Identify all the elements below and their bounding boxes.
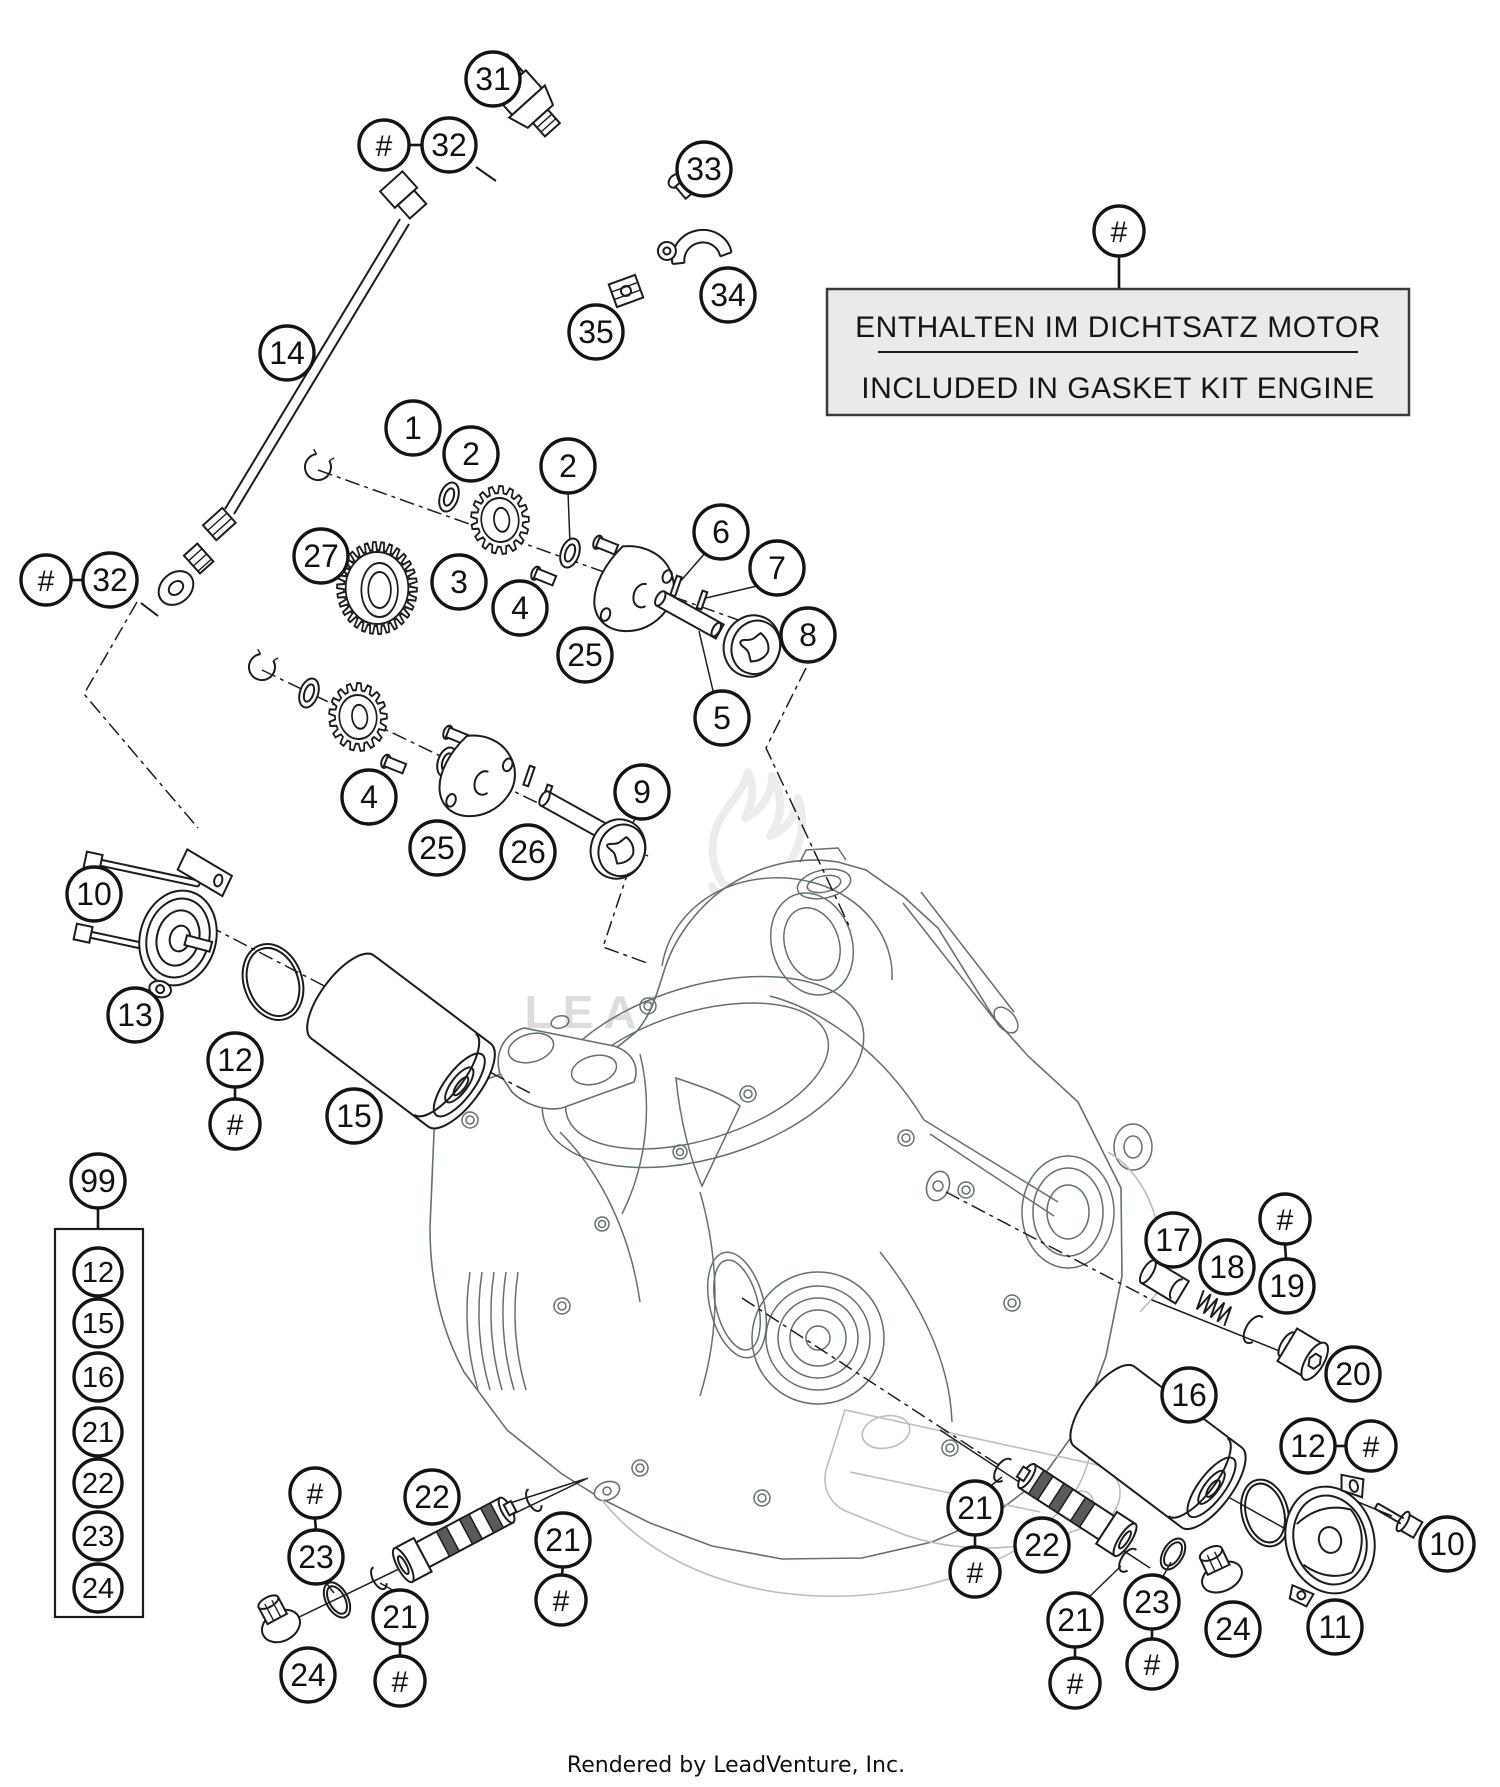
callout-32[interactable]: 32: [422, 118, 476, 172]
callout-24[interactable]: 24: [74, 1564, 122, 1612]
callout-23[interactable]: 23: [1125, 1575, 1179, 1629]
callout-#[interactable]: #: [21, 555, 71, 605]
callout-6[interactable]: 6: [694, 505, 748, 559]
callout-label: 33: [686, 151, 722, 187]
callout-22[interactable]: 22: [1015, 1518, 1069, 1572]
callout-2[interactable]: 2: [541, 439, 595, 493]
parts-diagram-page: LEADVENTURE: [0, 0, 1500, 1787]
callout-5[interactable]: 5: [695, 691, 749, 745]
callout-7[interactable]: 7: [750, 541, 804, 595]
pump-cover-25-drawing: [431, 727, 525, 828]
callout-label: #: [967, 1557, 984, 1590]
callout-18[interactable]: 18: [1200, 1240, 1254, 1294]
callout-label: 21: [82, 1417, 114, 1449]
callout-label: 12: [217, 1042, 253, 1078]
callout-label: 7: [768, 550, 786, 586]
callout-label: #: [553, 1585, 570, 1618]
callout-23[interactable]: 23: [74, 1512, 122, 1560]
callout-label: 22: [1024, 1527, 1060, 1563]
callout-label: 24: [290, 1657, 326, 1693]
callout-label: 5: [713, 700, 731, 736]
callout-label: #: [1277, 1204, 1294, 1237]
callout-25[interactable]: 25: [410, 821, 464, 875]
callout-label: 19: [1269, 1268, 1305, 1304]
callout-1[interactable]: 1: [386, 401, 440, 455]
callout-label: 35: [578, 314, 614, 350]
callout-label: 16: [82, 1362, 114, 1394]
callout-label: 12: [1290, 1428, 1326, 1464]
oil-line-14-drawing: [152, 171, 429, 611]
callout-label: 25: [419, 830, 455, 866]
callout-#[interactable]: #: [1094, 206, 1144, 256]
callout-label: 2: [559, 448, 577, 484]
callout-label: 13: [117, 997, 153, 1033]
callout-12[interactable]: 12: [208, 1033, 262, 1087]
callout-#[interactable]: #: [210, 1099, 260, 1149]
callout-19[interactable]: 19: [1260, 1259, 1314, 1313]
callout-label: #: [1111, 216, 1128, 249]
callout-#[interactable]: #: [290, 1468, 340, 1518]
callout-label: #: [307, 1478, 324, 1511]
dowel-pin-drawing: [141, 603, 158, 616]
callout-label: 34: [710, 277, 746, 313]
dowel-pin-drawing: [476, 167, 496, 181]
callout-13[interactable]: 13: [108, 988, 162, 1042]
callout-label: 24: [1215, 1611, 1251, 1647]
callout-label: 21: [1057, 1602, 1093, 1638]
circlip-1-drawing: [302, 448, 335, 483]
callout-label: 14: [269, 335, 305, 371]
circlip-1-drawing: [246, 648, 279, 683]
callout-label: #: [1067, 1668, 1084, 1701]
pump-gear-3-drawing: [468, 483, 532, 557]
callout-32[interactable]: 32: [83, 553, 137, 607]
callout-15[interactable]: 15: [327, 1089, 381, 1143]
pin-7-drawing: [697, 591, 708, 610]
callout-label: 22: [414, 1479, 450, 1515]
callout-label: 9: [633, 774, 651, 810]
credit-text: Rendered by LeadVenture, Inc.: [567, 1753, 905, 1778]
plug-screw-20-drawing: [1271, 1324, 1333, 1384]
callout-11[interactable]: 11: [1308, 1600, 1362, 1654]
pump-rotor-8-drawing: [715, 608, 788, 685]
callout-label: 23: [1134, 1584, 1170, 1620]
callout-21[interactable]: 21: [373, 1590, 427, 1644]
callout-21[interactable]: 21: [536, 1513, 590, 1567]
nut-35-drawing: [609, 275, 644, 307]
callout-23[interactable]: 23: [289, 1530, 343, 1584]
callout-label: 16: [1171, 1377, 1207, 1413]
callout-label: 3: [450, 564, 468, 600]
screw-4-drawing: [591, 534, 618, 556]
washer-23-drawing: [1156, 1534, 1191, 1573]
callout-label: 99: [80, 1163, 116, 1199]
callout-label: 8: [799, 617, 817, 653]
gasket-note-line1: ENTHALTEN IM DICHTSATZ MOTOR: [855, 311, 1381, 344]
callout-label: 21: [957, 1490, 993, 1526]
callout-label: 12: [82, 1257, 114, 1289]
callout-connector: [1285, 1245, 1286, 1259]
callout-#[interactable]: #: [536, 1575, 586, 1625]
callout-4[interactable]: 4: [342, 770, 396, 824]
callout-label: 18: [1209, 1249, 1245, 1285]
callout-label: #: [38, 565, 55, 598]
callout-label: 4: [511, 590, 529, 626]
callout-label: #: [1144, 1649, 1161, 1682]
callout-label: 26: [510, 834, 546, 870]
callout-#[interactable]: #: [1346, 1421, 1396, 1471]
callout-label: 25: [567, 637, 603, 673]
callout-21[interactable]: 21: [74, 1408, 122, 1456]
callout-#[interactable]: #: [1260, 1194, 1310, 1244]
callout-#[interactable]: #: [375, 1656, 425, 1706]
callout-16[interactable]: 16: [74, 1353, 122, 1401]
callout-10[interactable]: 10: [67, 867, 121, 921]
callout-26[interactable]: 26: [501, 825, 555, 879]
callout-8[interactable]: 8: [781, 608, 835, 662]
callout-12[interactable]: 12: [1281, 1419, 1335, 1473]
callout-20[interactable]: 20: [1326, 1347, 1380, 1401]
callout-17[interactable]: 17: [1146, 1213, 1200, 1267]
washer-2-drawing: [436, 480, 463, 514]
callout-label: 21: [382, 1599, 418, 1635]
bolt-10-drawing: [1371, 1496, 1424, 1539]
pump-gear-3-drawing: [326, 680, 390, 754]
washer-2-drawing: [296, 676, 323, 710]
o-ring-12-drawing: [232, 935, 313, 1028]
callout-35[interactable]: 35: [569, 305, 623, 359]
callout-22[interactable]: 22: [405, 1470, 459, 1524]
callout-21[interactable]: 21: [948, 1481, 1002, 1535]
callout-34[interactable]: 34: [701, 268, 755, 322]
callout-4[interactable]: 4: [493, 581, 547, 635]
callout-label: 32: [92, 562, 128, 598]
callout-16[interactable]: 16: [1162, 1368, 1216, 1422]
callout-#[interactable]: #: [1050, 1658, 1100, 1708]
callout-label: 32: [431, 127, 467, 163]
callout-label: 23: [298, 1539, 334, 1575]
pin-6-drawing: [523, 766, 534, 787]
callout-label: 6: [712, 514, 730, 550]
callout-27[interactable]: 27: [294, 529, 348, 583]
callout-3[interactable]: 3: [432, 555, 486, 609]
callout-22[interactable]: 22: [74, 1459, 122, 1507]
callout-label: 10: [76, 876, 112, 912]
gasket-note-line2: INCLUDED IN GASKET KIT ENGINE: [861, 372, 1375, 405]
callout-25[interactable]: 25: [558, 628, 612, 682]
washer-23-drawing: [318, 1578, 355, 1622]
callout-label: 22: [82, 1468, 114, 1500]
lubrication-system-diagram: LEADVENTURE: [0, 0, 1500, 1787]
callout-33[interactable]: 33: [677, 142, 731, 196]
gasket-note: ENTHALTEN IM DICHTSATZ MOTOR INCLUDED IN…: [827, 289, 1409, 415]
callout-label: 21: [545, 1522, 581, 1558]
callout-24[interactable]: 24: [281, 1648, 335, 1702]
callout-#[interactable]: #: [1127, 1639, 1177, 1689]
callout-label: 2: [462, 436, 480, 472]
callout-99[interactable]: 99: [71, 1154, 125, 1208]
callout-label: 24: [82, 1573, 114, 1605]
callout-label: #: [392, 1666, 409, 1699]
callout-label: #: [376, 130, 393, 163]
callout-label: 15: [82, 1308, 114, 1340]
oil-plug-24-drawing: [248, 1588, 305, 1648]
callout-10[interactable]: 10: [1420, 1517, 1474, 1571]
engine-crankcase-drawing: [430, 848, 1152, 1559]
pump-cover-25-drawing: [585, 538, 684, 644]
callout-label: 17: [1155, 1222, 1191, 1258]
callout-24[interactable]: 24: [1206, 1602, 1260, 1656]
callout-9[interactable]: 9: [615, 765, 669, 819]
callout-label: 4: [360, 779, 378, 815]
callout-12[interactable]: 12: [74, 1248, 122, 1296]
callout-#[interactable]: #: [359, 120, 409, 170]
clamp-34-drawing: [655, 223, 732, 271]
callout-31[interactable]: 31: [466, 52, 520, 106]
screw-4-drawing: [379, 753, 406, 775]
oil-plug-24-drawing: [1189, 1539, 1247, 1598]
callout-label: 23: [82, 1521, 114, 1553]
callout-label: 11: [1318, 1609, 1351, 1645]
callout-label: 10: [1429, 1526, 1465, 1562]
callout-label: 20: [1335, 1356, 1371, 1392]
callout-label: 1: [404, 410, 422, 446]
callout-label: 27: [303, 538, 339, 574]
callout-label: #: [1363, 1431, 1380, 1464]
washer-2b-drawing: [557, 536, 584, 570]
callout-label: #: [227, 1109, 244, 1142]
callout-21[interactable]: 21: [1048, 1593, 1102, 1647]
callout-15[interactable]: 15: [74, 1299, 122, 1347]
callout-2[interactable]: 2: [444, 427, 498, 481]
callout-#[interactable]: #: [950, 1547, 1000, 1597]
callout-label: 15: [336, 1098, 372, 1134]
callout-14[interactable]: 14: [260, 326, 314, 380]
callout-label: 31: [475, 61, 511, 97]
